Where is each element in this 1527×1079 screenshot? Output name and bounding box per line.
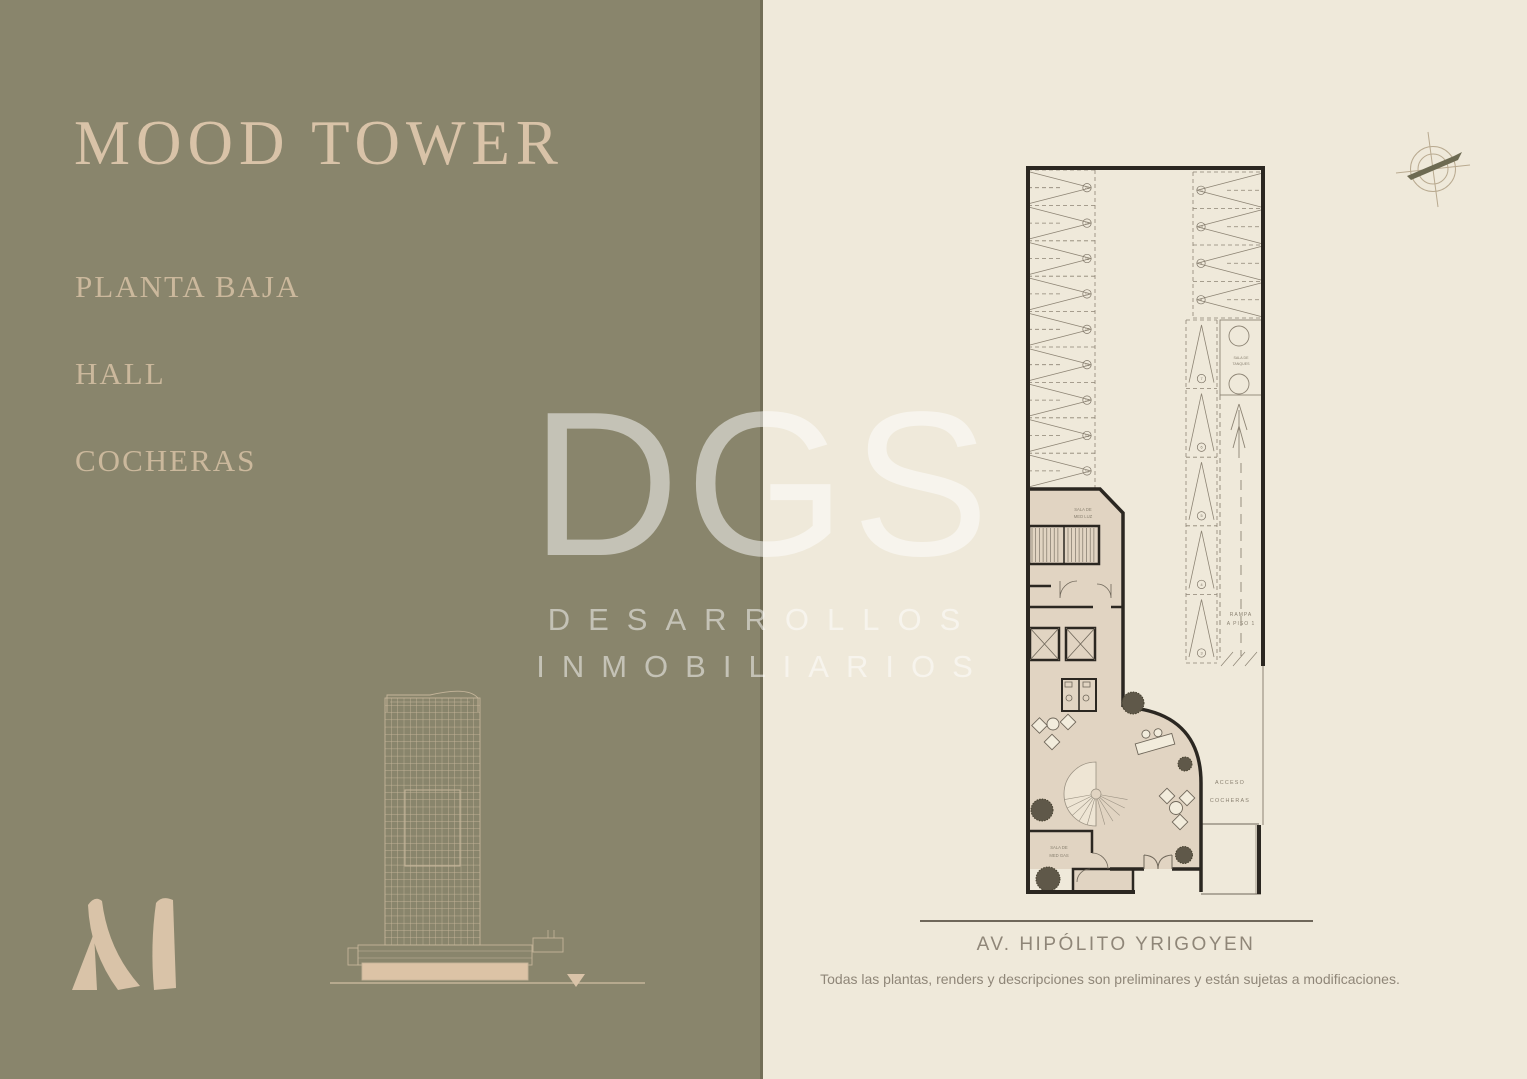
svg-text:6: 6	[1200, 446, 1202, 450]
compass-icon	[1392, 126, 1476, 214]
compass-needle	[1407, 152, 1462, 180]
street-divider-line	[920, 920, 1313, 922]
ramp-label: RAMPA	[1230, 612, 1252, 618]
svg-text:15: 15	[1085, 363, 1089, 367]
brochure-page: MOOD TOWER PLANTA BAJA HALL COCHERAS	[0, 0, 1527, 1079]
svg-text:20: 20	[1085, 186, 1089, 190]
project-title: MOOD TOWER	[74, 112, 564, 175]
tower-crown	[387, 691, 478, 712]
street-label: AV. HIPÓLITO YRIGOYEN	[900, 934, 1332, 956]
svg-text:3: 3	[1200, 651, 1202, 655]
svg-text:10: 10	[1199, 225, 1203, 229]
floor-indicator-triangle	[567, 974, 585, 987]
svg-text:TANQUES: TANQUES	[1232, 362, 1250, 366]
svg-text:7: 7	[1200, 377, 1202, 381]
svg-text:12: 12	[1085, 469, 1089, 473]
svg-text:COCHERAS: COCHERAS	[1210, 798, 1250, 804]
svg-text:18: 18	[1085, 257, 1089, 261]
menu-item-cocheras: COCHERAS	[75, 445, 256, 476]
svg-text:MED LUZ: MED LUZ	[1074, 514, 1093, 519]
svg-text:A PISO 1: A PISO 1	[1227, 621, 1256, 627]
svg-text:11: 11	[1199, 189, 1203, 193]
electric-room-label: SALA DE	[1074, 507, 1092, 512]
tank-room-label: SALA DE	[1234, 356, 1250, 360]
disclaimer-text: Todas las plantas, renders y descripcion…	[780, 971, 1440, 987]
building-elevation-illustration	[320, 672, 660, 1007]
svg-text:MED GAS: MED GAS	[1049, 853, 1069, 858]
m-logo	[55, 880, 215, 1010]
svg-text:14: 14	[1085, 399, 1089, 403]
svg-text:13: 13	[1085, 434, 1089, 438]
svg-text:4: 4	[1200, 583, 1202, 587]
svg-text:9: 9	[1200, 262, 1202, 266]
svg-text:16: 16	[1085, 328, 1089, 332]
menu-item-hall: HALL	[75, 358, 166, 389]
svg-text:8: 8	[1200, 298, 1202, 302]
gas-room-label: SALA DE	[1050, 845, 1068, 850]
garage-access-label: ACCESO	[1215, 780, 1245, 786]
panel-divider	[760, 0, 763, 1079]
menu-item-planta-baja: PLANTA BAJA	[75, 271, 300, 302]
svg-text:19: 19	[1085, 222, 1089, 226]
floor-plan: 20191817161514131211109876543	[1015, 158, 1275, 910]
ramp-arrow	[1231, 404, 1247, 458]
svg-text:5: 5	[1200, 514, 1202, 518]
svg-text:17: 17	[1085, 292, 1089, 296]
podium	[358, 945, 532, 965]
